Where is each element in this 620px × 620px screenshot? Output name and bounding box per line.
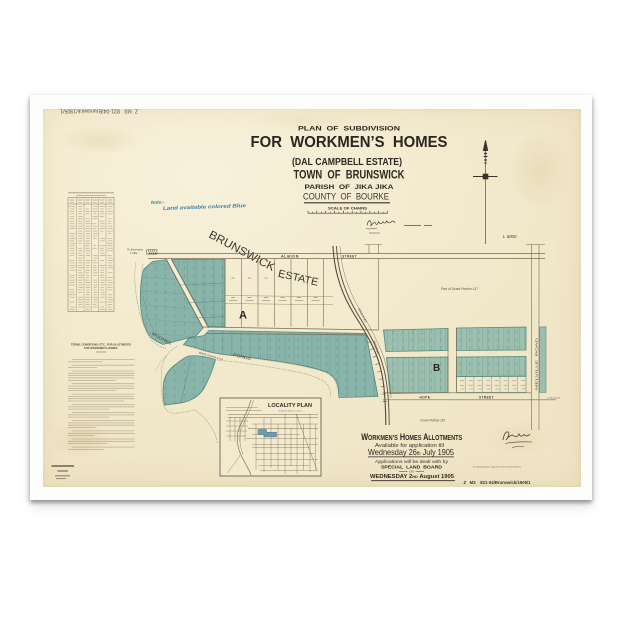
svg-text:1 Mile: 1 Mile <box>130 251 138 255</box>
svg-text:For lithographed plans apply a: For lithographed plans apply at the Offi… <box>473 466 522 469</box>
svg-text:Wednesday 26th July 1905: Wednesday 26th July 1905 <box>368 448 454 457</box>
svg-text:ALBION: ALBION <box>281 254 299 258</box>
svg-text:PLAN OF SUBDIVISION: PLAN OF SUBDIVISION <box>298 126 400 133</box>
svg-text:Crown Portion 118: Crown Portion 118 <box>420 419 445 423</box>
svg-text:Z M3 821·04/Brunswick/1905/: Z M3 821·04/Brunswick/1905/1 <box>60 108 138 114</box>
svg-text:TERMS, CONDITIONS, ETC., FOR A: TERMS, CONDITIONS, ETC., FOR ALLOTMENTS <box>71 343 131 346</box>
svg-text:TOWN OF BRUNSWICK: TOWN OF BRUNSWICK <box>294 168 405 182</box>
svg-text:PARISH OF JIKA JIKA: PARISH OF JIKA JIKA <box>305 184 394 191</box>
svg-text:SCALE OF CHAINS: SCALE OF CHAINS <box>328 205 367 210</box>
svg-text:STREET: STREET <box>342 254 357 258</box>
svg-text:Z M3 821·04/Brunswick/190: Z M3 821·04/Brunswick/1905/1 <box>464 480 531 485</box>
svg-text:Applications will be dealt wit: Applications will be dealt with by <box>375 459 449 464</box>
svg-text:Scale 40 Chains 1 Inch: Scale 40 Chains 1 Inch <box>279 411 303 413</box>
svg-text:FOR WORKMEN’S HOMES.: FOR WORKMEN’S HOMES. <box>84 347 118 350</box>
svg-text:MELVILLE ROAD: MELVILLE ROAD <box>534 336 538 390</box>
svg-text:ON: ON <box>409 469 413 473</box>
svg-text:A: A <box>239 310 247 322</box>
svg-text:B: B <box>433 363 440 374</box>
svg-text:(DAL CAMPBELL ESTATE): (DAL CAMPBELL ESTATE) <box>292 156 402 168</box>
svg-text:L 6000: L 6000 <box>503 234 517 239</box>
svg-text:HOPE: HOPE <box>420 395 431 399</box>
svg-text:STREET: STREET <box>479 395 494 399</box>
svg-text:COUNTY OF BOURKE: COUNTY OF BOURKE <box>303 192 389 202</box>
svg-text:Part of Grant Portion 117: Part of Grant Portion 117 <box>441 287 479 291</box>
svg-text:FOR WORKMEN’S HOMES: FOR WORKMEN’S HOMES <box>251 134 448 151</box>
svg-text:To Brunswick: To Brunswick <box>547 398 561 400</box>
svg-text:LOCALITY PLAN: LOCALITY PLAN <box>268 403 312 409</box>
svg-text:Note:-: Note:- <box>151 200 165 205</box>
